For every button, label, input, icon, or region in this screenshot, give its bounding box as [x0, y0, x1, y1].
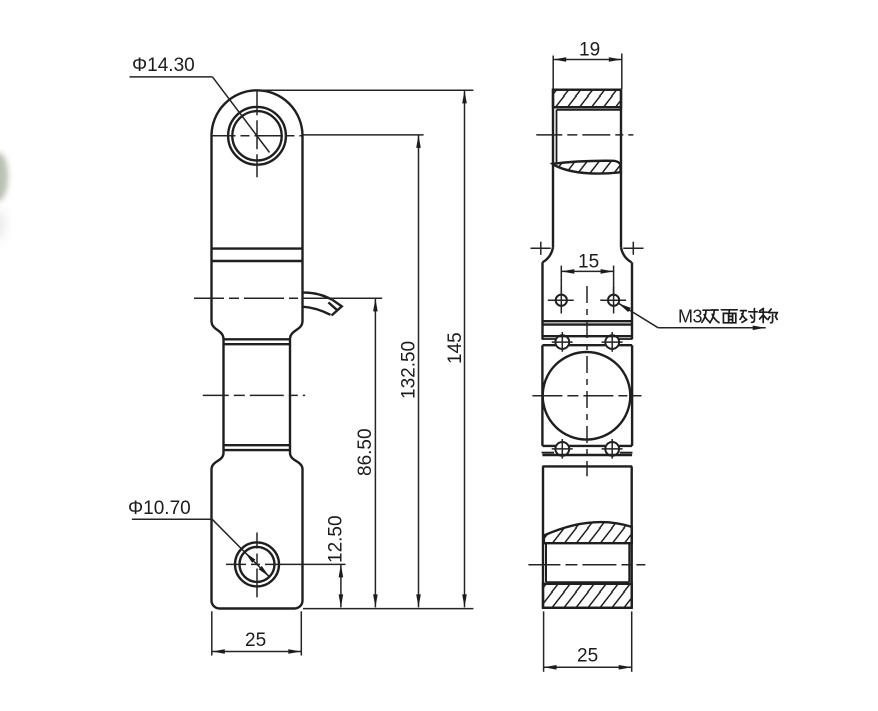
- svg-text:15: 15: [578, 252, 599, 273]
- svg-text:25: 25: [577, 646, 598, 667]
- svg-text:Φ10.70: Φ10.70: [128, 498, 191, 519]
- svg-text:145: 145: [445, 332, 466, 364]
- svg-text:132.50: 132.50: [398, 341, 419, 399]
- svg-text:25: 25: [245, 630, 266, 651]
- svg-text:12.50: 12.50: [326, 515, 347, 563]
- svg-text:19: 19: [579, 40, 600, 61]
- svg-text:Φ14.30: Φ14.30: [132, 55, 195, 76]
- svg-text:M3: M3: [678, 307, 702, 327]
- svg-text:86.50: 86.50: [355, 428, 376, 476]
